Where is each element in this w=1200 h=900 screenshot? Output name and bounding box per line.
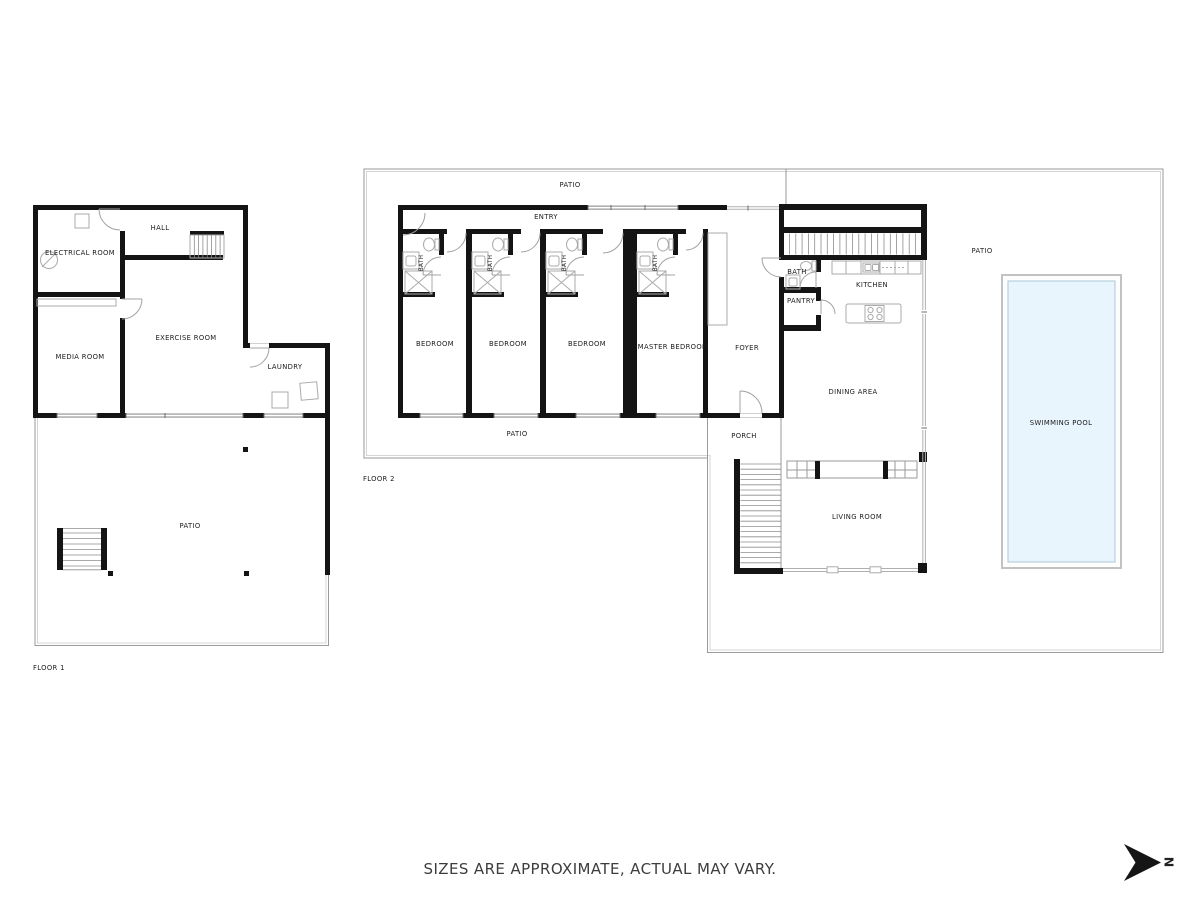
floor1-title: FLOOR 1 [33,664,65,672]
room-label-living: LIVING ROOM [832,513,882,521]
room-label-foyer: FOYER [735,344,759,352]
room-label-patio-top: PATIO [559,181,580,189]
room-label-electrical: ELECTRICAL ROOM [45,249,115,257]
floor2-plan [364,169,1163,653]
room-label-bath3: BATH [562,255,568,272]
floorplan-canvas: ELECTRICAL ROOM HALL MEDIA ROOM EXERCISE… [0,0,1200,900]
floor1-patio-stairs [57,528,107,570]
room-label-patio-right: PATIO [971,247,992,255]
floor1-patio-columns [108,447,249,576]
floor1-patio-outline [35,418,329,646]
floor2-bedroom-wing-walls [398,205,783,418]
room-label-pantry: PANTRY [787,297,815,305]
floor2-main-stairs [790,234,916,255]
room-label-bath5: BATH [787,268,806,276]
floor1-plan [33,205,330,646]
room-label-bath2: BATH [488,255,494,272]
north-letter: N [1162,857,1177,867]
room-label-dining: DINING AREA [828,388,877,396]
room-label-entry: ENTRY [534,213,558,221]
room-label-media: MEDIA ROOM [56,353,105,361]
room-label-kitchen: KITCHEN [856,281,888,289]
floor1-windows [57,413,303,418]
floor1-hall-stairs [190,231,224,258]
room-label-swimming-pool: SWIMMING POOL [1030,419,1092,427]
room-label-bedroom3: BEDROOM [568,340,606,348]
room-label-bath1: BATH [419,255,425,272]
room-label-hall: HALL [151,224,170,232]
room-label-porch: PORCH [731,432,756,440]
room-label-bedroom1: BEDROOM [416,340,454,348]
floorplan-drawing [0,0,1200,900]
north-arrow-icon [1124,844,1161,881]
floor2-title: FLOOR 2 [363,475,395,483]
floor2-bath-fixtures [403,233,727,325]
room-label-master-bedroom: MASTER BEDROOM [638,343,709,351]
room-label-laundry: LAUNDRY [268,363,303,371]
floor2-porch-stairs [741,459,782,568]
floor1-fixtures [37,214,318,408]
room-label-exercise: EXERCISE ROOM [156,334,217,342]
floor2-right-doors [762,258,835,314]
room-label-bath4: BATH [653,255,659,272]
room-label-bedroom2: BEDROOM [489,340,527,348]
floor2-glass-walls [783,260,927,573]
floor2-living-railing [787,461,917,479]
room-label-patio-wing: PATIO [506,430,527,438]
floor1-walls [33,205,330,575]
room-label-patio-floor1: PATIO [179,522,200,530]
disclaimer-text: SIZES ARE APPROXIMATE, ACTUAL MAY VARY. [424,860,777,878]
